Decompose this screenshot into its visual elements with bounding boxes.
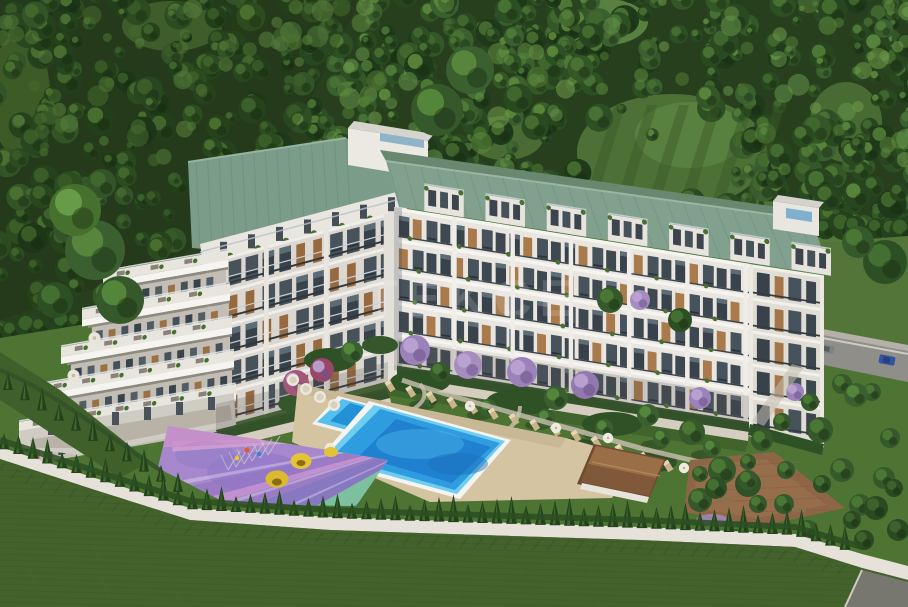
svg-text:TEKÇE: TEKÇE: [366, 270, 582, 328]
